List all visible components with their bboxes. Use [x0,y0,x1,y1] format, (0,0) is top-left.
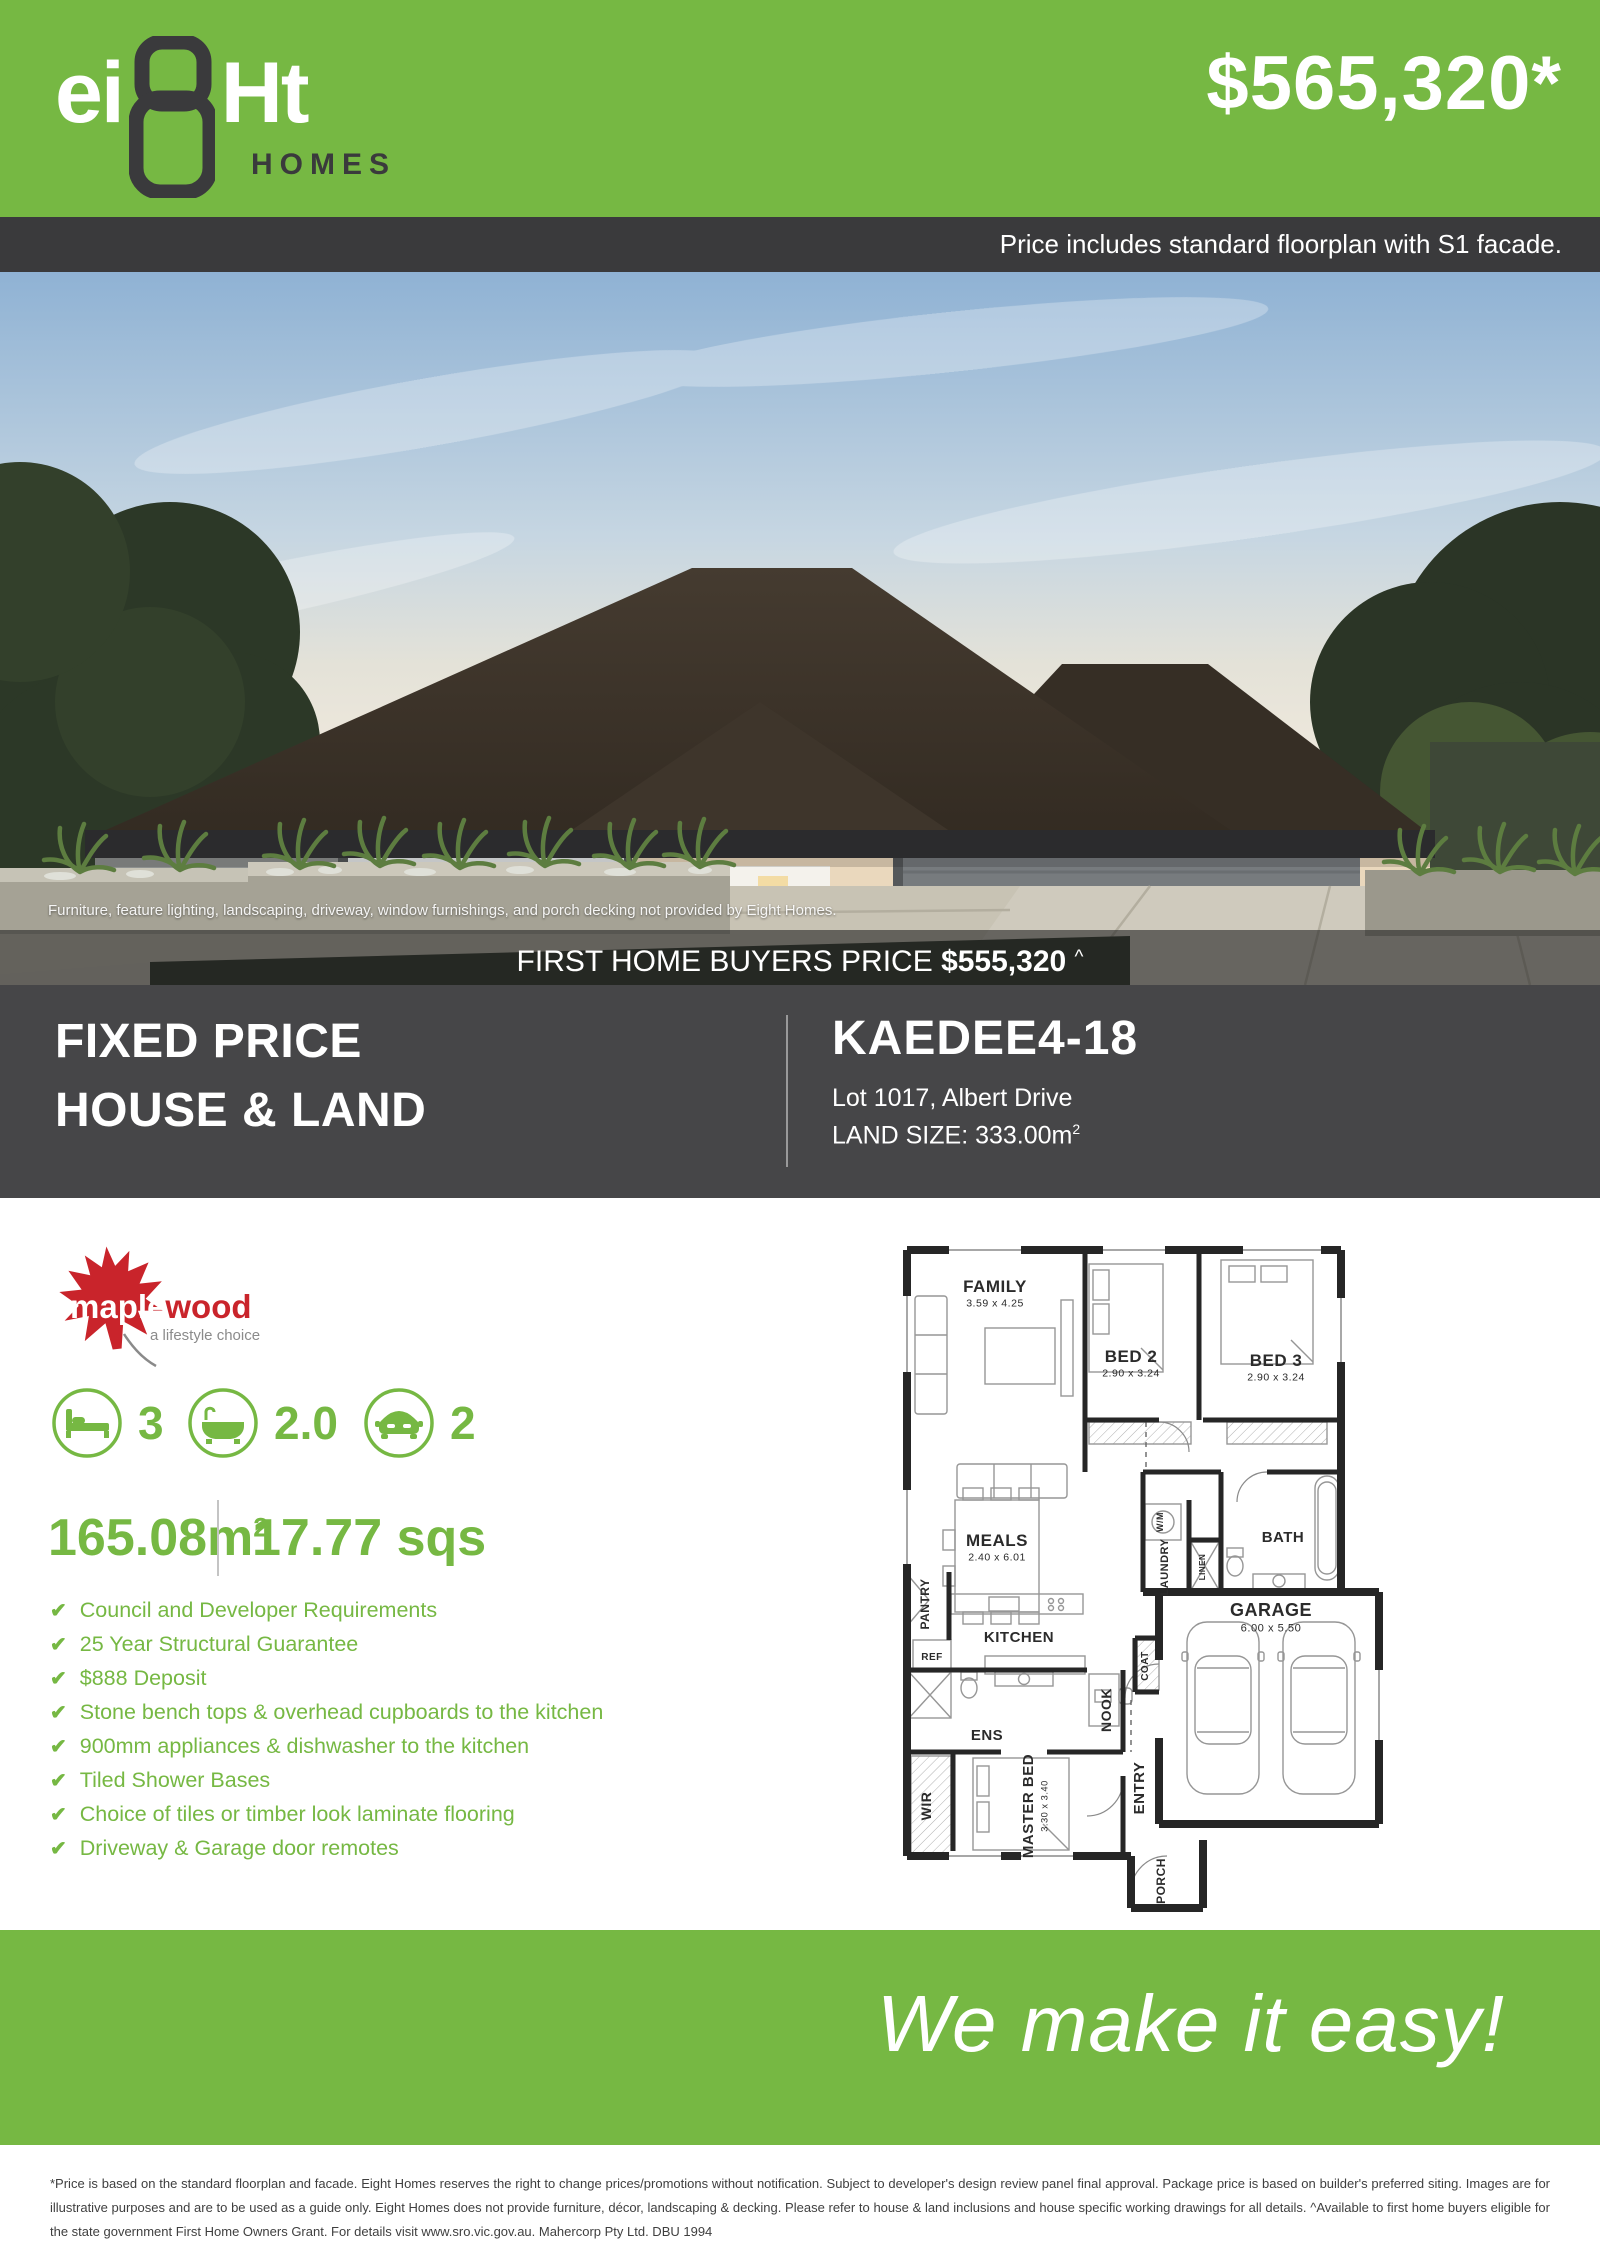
maplewood-logo: maplewood a lifestyle choice [50,1242,300,1387]
photo-disclaimer-caption: Furniture, feature lighting, landscaping… [48,902,837,919]
maplewood-text-maple: maple [70,1288,165,1325]
maplewood-text-wood: wood [164,1288,251,1325]
check-icon: ✔ [50,1629,67,1662]
check-icon: ✔ [50,1799,67,1832]
room-label: ENS [971,1727,1003,1744]
inclusion-item: ✔Council and Developer Requirements [50,1594,603,1628]
inclusion-text: $888 Deposit [80,1662,207,1695]
package-title-line2: HOUSE & LAND [55,1076,426,1145]
check-icon: ✔ [50,1833,67,1866]
main-content: maplewood a lifestyle choice 3 [0,1198,1600,1930]
beds-count: 3 [138,1396,164,1450]
room-label: FAMILY [963,1277,1027,1296]
room-label: LINEN [1198,1554,1207,1581]
room-label: GARAGE [1230,1600,1312,1620]
check-icon: ✔ [50,1663,67,1696]
bed-icon [50,1386,124,1460]
fineprint-disclaimer: *Price is based on the standard floorpla… [50,2172,1550,2244]
eight-glyph-icon [129,36,215,203]
inclusion-text: Council and Developer Requirements [80,1594,437,1627]
floorplan: FAMILY3.59 x 4.25BED 22.90 x 3.24BED 32.… [891,1240,1465,1930]
check-icon: ✔ [50,1765,67,1798]
check-icon: ✔ [50,1595,67,1628]
inclusion-text: Stone bench tops & overhead cupboards to… [80,1696,604,1729]
vertical-divider [786,1015,788,1167]
inclusion-item: ✔Tiled Shower Bases [50,1764,603,1798]
maplewood-tagline: a lifestyle choice [150,1327,260,1344]
house-area-m2: 165.08m2 [48,1508,268,1568]
room-label: BED 3 [1250,1351,1303,1370]
inclusion-item: ✔Choice of tiles or timber look laminate… [50,1798,603,1832]
inclusion-text: Choice of tiles or timber look laminate … [80,1798,515,1831]
inclusion-item: ✔25 Year Structural Guarantee [50,1628,603,1662]
price-note-text: Price includes standard floorplan with S… [1000,229,1562,259]
plan-name: KAEDEE4-18 [832,1011,1138,1066]
package-band: FIXED PRICE HOUSE & LAND KAEDEE4-18 Lot … [0,985,1600,1198]
land-size: LAND SIZE: 333.00m2 [832,1121,1138,1150]
check-icon: ✔ [50,1731,67,1764]
lot-address: Lot 1017, Albert Drive [832,1084,1138,1113]
inclusions-list: ✔Council and Developer Requirements✔25 Y… [50,1594,603,1866]
package-price: $565,320* [1206,40,1562,127]
car-icon [362,1386,436,1460]
package-details: KAEDEE4-18 Lot 1017, Albert Drive LAND S… [832,1011,1138,1150]
cars-count: 2 [450,1396,476,1450]
room-label: 3.30 x 3.40 [1039,1780,1049,1832]
baths-count: 2.0 [274,1396,338,1450]
room-label: PANTRY [918,1579,932,1630]
footer-band: We make it easy! [0,1930,1600,2145]
room-label: COAT [1140,1651,1151,1681]
inclusion-item: ✔$888 Deposit [50,1662,603,1696]
inclusion-text: Tiled Shower Bases [80,1764,270,1797]
room-label: W/M [1155,1512,1165,1532]
house-render-photo: Furniture, feature lighting, landscaping… [0,272,1600,985]
package-title: FIXED PRICE HOUSE & LAND [55,1007,426,1145]
logo-text-ei: ei [55,50,123,136]
spec-row: 3 2.0 [0,1386,800,1466]
room-label: REF [921,1652,943,1663]
room-label: 2.40 x 6.01 [968,1551,1026,1563]
inclusion-item: ✔Stone bench tops & overhead cupboards t… [50,1696,603,1730]
house-area-squares: 17.77 sqs [252,1508,486,1568]
header-band: ei Ht HOMES $565,320* [0,0,1600,217]
stats-divider [217,1500,219,1576]
fhb-footnote-mark: ^ [1075,947,1084,968]
slogan: We make it easy! [877,1978,1505,2070]
bath-icon [186,1386,260,1460]
fhb-price: $555,320 [941,945,1066,978]
room-label: 3.59 x 4.25 [966,1297,1024,1309]
eight-homes-logo: ei Ht HOMES [55,36,475,186]
room-label: LAUNDRY [1159,1538,1171,1595]
room-label: 6.00 x 5.50 [1241,1622,1302,1634]
room-label: PORCH [1154,1858,1168,1904]
flyer-page: ei Ht HOMES $565,320* Price includes sta… [0,0,1600,2262]
room-label: MEALS [966,1531,1028,1550]
inclusion-text: 25 Year Structural Guarantee [80,1628,359,1661]
baths-spec: 2.0 [186,1386,338,1460]
first-home-buyers-bar: FIRST HOME BUYERS PRICE $555,320 ^ [0,930,1600,985]
fhb-label: FIRST HOME BUYERS PRICE [517,945,933,978]
svg-text:maplewood: maplewood [70,1288,252,1325]
room-label: KITCHEN [984,1629,1054,1646]
cars-spec: 2 [362,1386,476,1460]
area-stats: 165.08m2 17.77 sqs [0,1498,800,1588]
inclusion-item: ✔900mm appliances & dishwasher to the ki… [50,1730,603,1764]
beds-spec: 3 [50,1386,164,1460]
house-scene [0,272,1600,985]
inclusion-text: 900mm appliances & dishwasher to the kit… [80,1730,529,1763]
room-label: WIR [918,1792,934,1821]
room-label: BATH [1262,1529,1305,1546]
package-title-line1: FIXED PRICE [55,1007,426,1076]
room-label: BED 2 [1105,1347,1158,1366]
logo-text-ht: Ht [221,50,308,136]
check-icon: ✔ [50,1697,67,1730]
logo-text-homes: HOMES [251,148,396,182]
room-label: 2.90 x 3.24 [1102,1367,1160,1379]
room-label: ENTRY [1131,1762,1148,1815]
room-label: NOOK [1098,1688,1114,1732]
room-label: 2.90 x 3.24 [1247,1371,1305,1383]
room-label: MASTER BED [1020,1754,1037,1858]
inclusion-item: ✔Driveway & Garage door remotes [50,1832,603,1866]
inclusion-text: Driveway & Garage door remotes [80,1832,399,1865]
price-note-strip: Price includes standard floorplan with S… [0,217,1600,272]
